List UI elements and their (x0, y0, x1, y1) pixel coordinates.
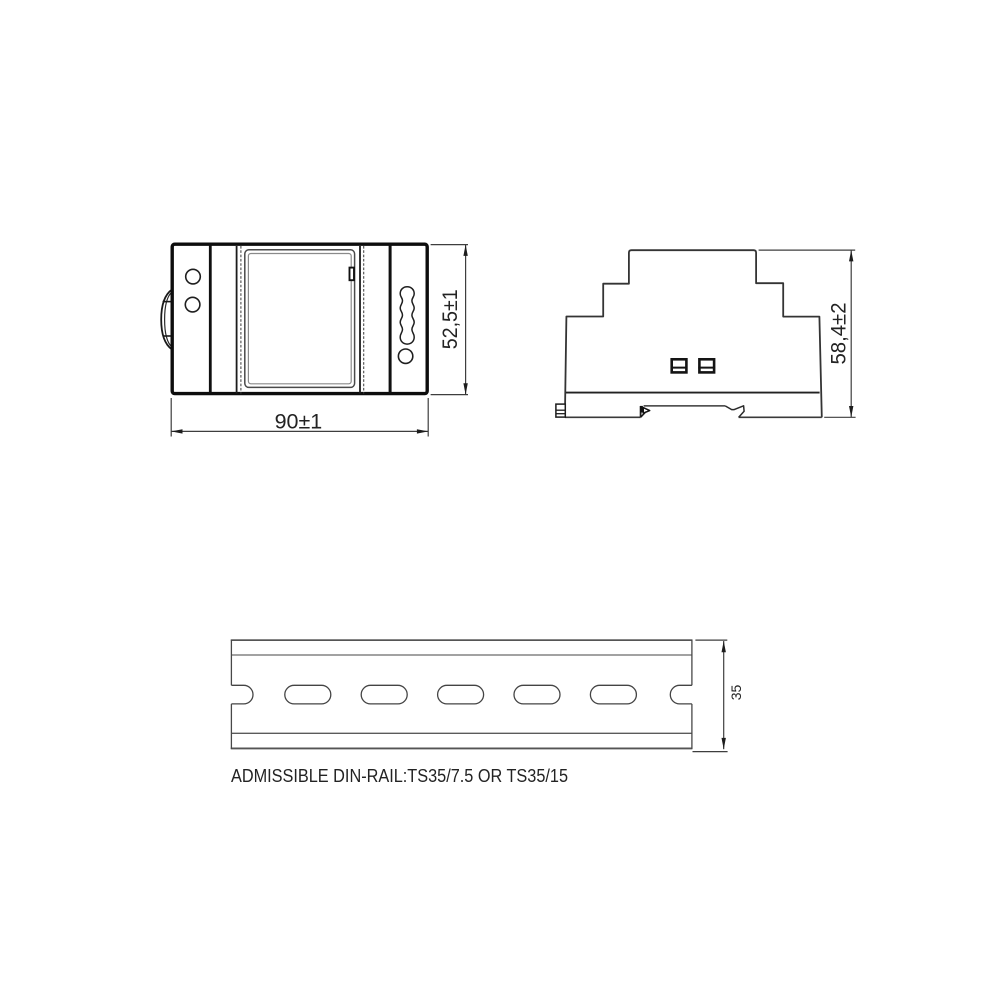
svg-text:58,4±2: 58,4±2 (826, 303, 850, 365)
svg-text:52,5±1: 52,5±1 (438, 289, 462, 349)
svg-text:35: 35 (728, 685, 744, 701)
svg-text:ADMISSIBLE DIN-RAIL:TS35/7.5 O: ADMISSIBLE DIN-RAIL:TS35/7.5 OR TS35/15 (231, 765, 568, 786)
svg-text:90±1: 90±1 (275, 409, 323, 433)
